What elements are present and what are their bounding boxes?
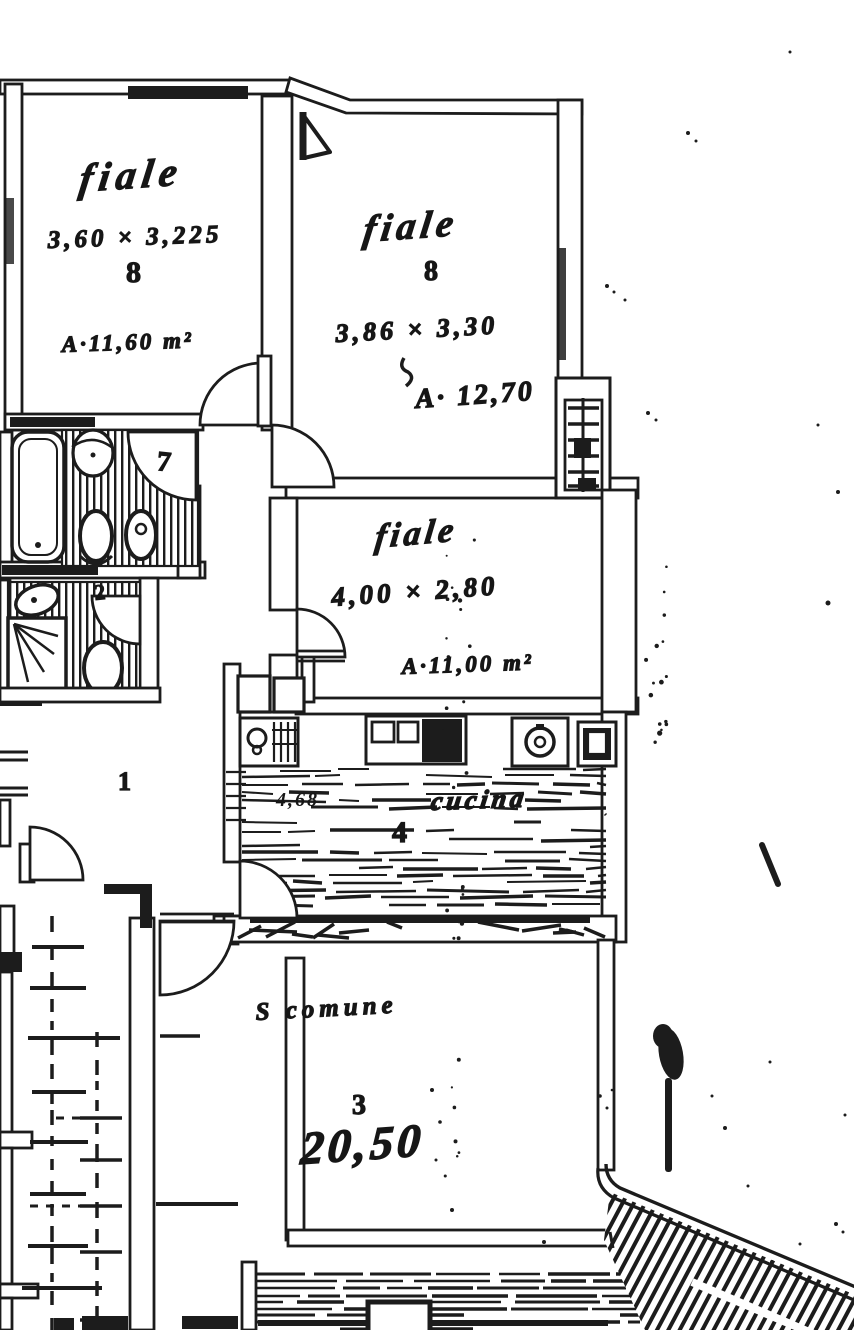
svg-text:4: 4 [392, 816, 407, 849]
svg-text:fiale: fiale [373, 511, 460, 556]
svg-text:A·11,60 m²: A·11,60 m² [59, 327, 194, 357]
svg-text:cucina: cucina [429, 784, 529, 816]
svg-text:20,50: 20,50 [298, 1114, 426, 1174]
svg-text:4,68: 4,68 [275, 789, 319, 811]
svg-text:3: 3 [352, 1090, 366, 1121]
svg-text:fiale: fiale [77, 149, 186, 201]
svg-text:8: 8 [126, 256, 141, 289]
svg-text:8: 8 [424, 256, 438, 287]
svg-text:1: 1 [118, 767, 131, 796]
svg-text:fiale: fiale [361, 202, 461, 251]
svg-text:A·11,00 m²: A·11,00 m² [399, 649, 534, 679]
